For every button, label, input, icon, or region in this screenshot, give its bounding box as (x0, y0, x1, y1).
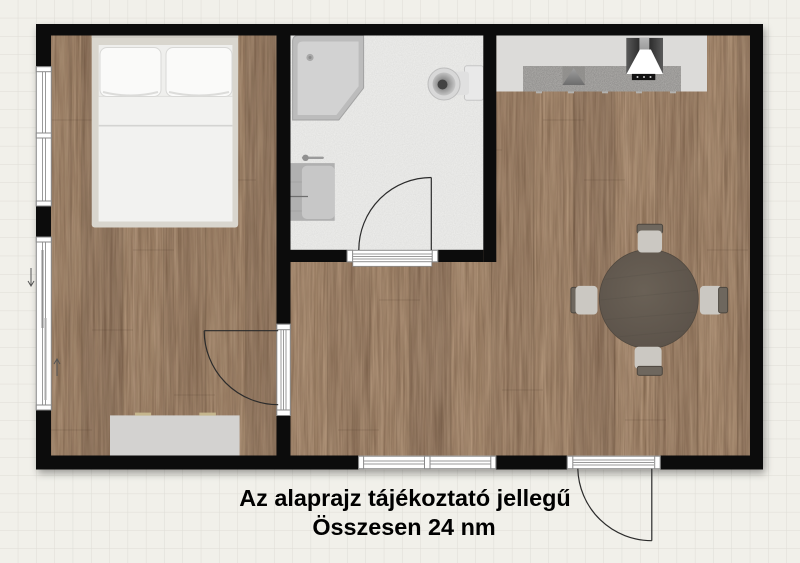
svg-text:Összesen 24 nm: Összesen 24 nm (312, 514, 495, 540)
svg-text:Az alaprajz tájékoztató jelleg: Az alaprajz tájékoztató jellegű (239, 485, 570, 511)
